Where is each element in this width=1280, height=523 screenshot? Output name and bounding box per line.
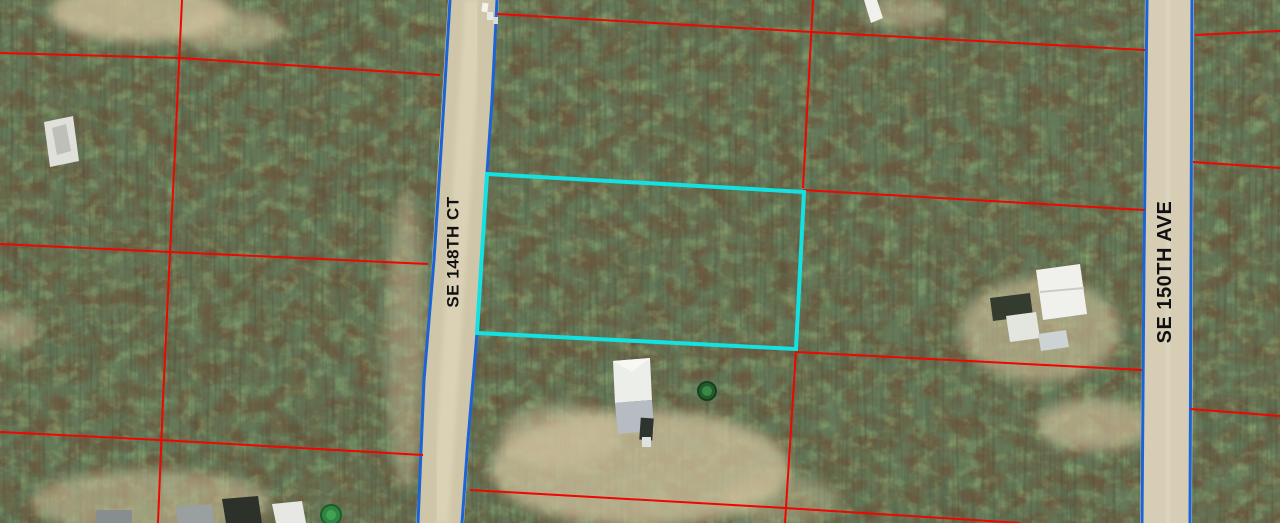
trailer [642, 437, 651, 447]
vehicle [487, 12, 493, 20]
road-edge-150-east [1190, 0, 1192, 523]
pool-round-2-water [326, 510, 336, 520]
building-roof-gray2 [176, 504, 214, 523]
vehicle [493, 17, 498, 24]
building-roof-gray [96, 510, 132, 523]
vehicle [481, 3, 488, 13]
house-roof-small [1006, 312, 1040, 342]
street-label-se-148th-ct: SE 148TH CT [444, 196, 463, 307]
building-roof-white [272, 501, 306, 523]
building-west [44, 116, 79, 167]
building-roof-dark [222, 496, 262, 523]
street-label-se-150th-ave: SE 150TH AVE [1154, 201, 1176, 344]
aerial-map: SE 148TH CT SE 150TH AVE [0, 0, 1280, 523]
pool-round-water [702, 386, 712, 396]
